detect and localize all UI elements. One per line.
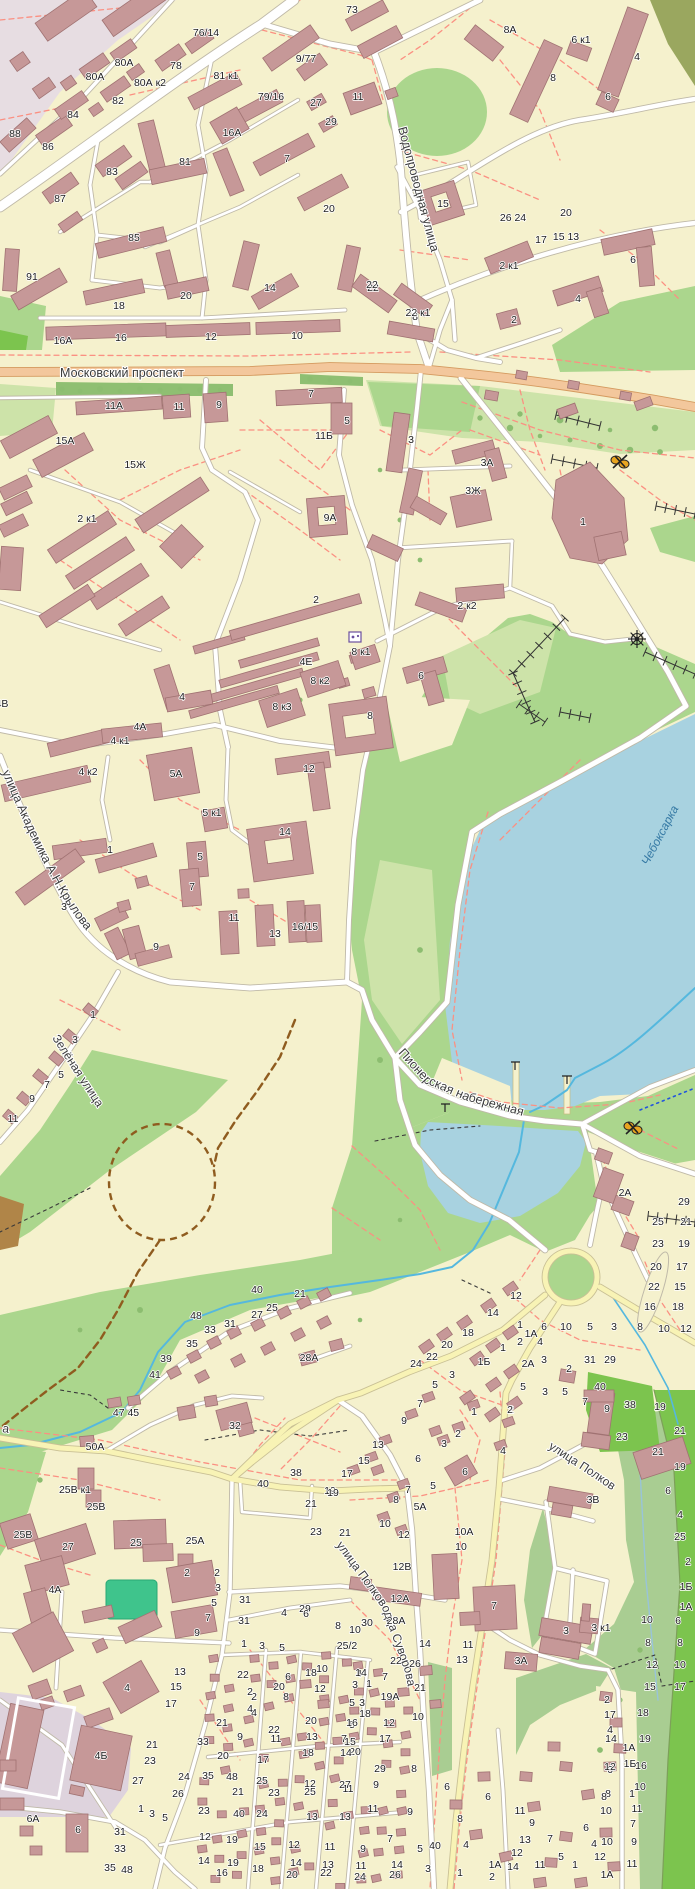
svg-text:2: 2 (685, 1556, 691, 1568)
svg-text:5: 5 (279, 1642, 285, 1654)
svg-text:11Б: 11Б (315, 430, 333, 442)
svg-text:13: 13 (456, 1654, 468, 1666)
svg-text:6: 6 (583, 1822, 589, 1834)
svg-text:10А: 10А (455, 1526, 474, 1538)
svg-text:31: 31 (239, 1594, 251, 1606)
svg-text:1: 1 (471, 1406, 477, 1418)
svg-text:9: 9 (604, 1403, 610, 1415)
svg-text:13: 13 (306, 1731, 318, 1743)
svg-text:2: 2 (566, 1363, 572, 1375)
svg-text:35: 35 (186, 1338, 198, 1350)
svg-text:33: 33 (114, 1843, 126, 1855)
svg-text:31: 31 (238, 1615, 250, 1627)
svg-text:5: 5 (58, 1069, 64, 1081)
svg-text:15: 15 (170, 1681, 182, 1693)
svg-text:18: 18 (637, 1707, 649, 1719)
svg-text:15: 15 (254, 1841, 266, 1853)
svg-text:4В: 4В (0, 698, 8, 710)
svg-text:8: 8 (677, 1637, 683, 1649)
svg-text:5: 5 (558, 1851, 564, 1863)
svg-text:25: 25 (266, 1302, 278, 1314)
svg-text:19: 19 (674, 1461, 686, 1473)
svg-text:5: 5 (162, 1812, 168, 1824)
svg-text:22: 22 (648, 1281, 660, 1293)
svg-text:26: 26 (409, 1658, 421, 1670)
svg-text:9А: 9А (324, 512, 337, 524)
svg-text:12: 12 (510, 1290, 522, 1302)
svg-text:7: 7 (189, 881, 195, 893)
svg-text:40: 40 (233, 1808, 245, 1820)
svg-text:16А: 16А (223, 127, 242, 139)
svg-text:10: 10 (455, 1541, 467, 1553)
svg-text:Московский проспект: Московский проспект (60, 366, 184, 380)
svg-text:11: 11 (463, 1639, 474, 1651)
svg-text:12: 12 (205, 331, 217, 343)
svg-text:6: 6 (285, 1671, 291, 1683)
svg-text:6: 6 (630, 254, 636, 266)
svg-text:3 к1: 3 к1 (591, 1622, 610, 1634)
svg-text:15А: 15А (56, 435, 75, 447)
svg-text:1Б: 1Б (478, 1356, 491, 1368)
svg-text:39: 39 (160, 1353, 172, 1365)
svg-text:1: 1 (500, 1342, 506, 1354)
svg-text:12В: 12В (393, 1561, 412, 1573)
svg-text:5: 5 (197, 851, 203, 863)
svg-text:1: 1 (366, 1678, 372, 1690)
svg-text:22: 22 (426, 1351, 438, 1363)
svg-text:1: 1 (580, 516, 586, 528)
svg-text:27: 27 (251, 1309, 263, 1321)
svg-text:24: 24 (256, 1808, 268, 1820)
svg-text:7: 7 (382, 1671, 388, 1683)
svg-text:1А: 1А (601, 1869, 614, 1881)
svg-text:21: 21 (216, 1717, 228, 1729)
svg-text:38: 38 (624, 1399, 636, 1411)
svg-text:14: 14 (355, 1667, 367, 1679)
svg-text:14: 14 (487, 1307, 499, 1319)
svg-text:9: 9 (401, 1415, 407, 1427)
svg-text:1: 1 (138, 1803, 144, 1815)
svg-text:8 к2: 8 к2 (310, 675, 329, 687)
svg-text:5: 5 (344, 415, 350, 427)
svg-text:10: 10 (560, 1321, 572, 1333)
svg-text:9: 9 (237, 1731, 243, 1743)
svg-text:6: 6 (303, 1608, 309, 1620)
svg-text:26: 26 (389, 1869, 401, 1881)
svg-text:7: 7 (630, 1818, 636, 1830)
svg-text:8: 8 (637, 1321, 643, 1333)
svg-text:3: 3 (541, 1354, 547, 1366)
svg-text:21: 21 (305, 1498, 317, 1510)
svg-text:6: 6 (675, 1615, 681, 1627)
svg-text:31: 31 (584, 1354, 596, 1366)
svg-text:1А: 1А (489, 1859, 502, 1871)
svg-text:25В: 25В (87, 1501, 106, 1513)
svg-text:5: 5 (211, 1597, 217, 1609)
svg-text:31: 31 (114, 1826, 126, 1838)
svg-text:22: 22 (390, 1655, 402, 1667)
svg-text:27: 27 (310, 97, 322, 109)
svg-text:8А: 8А (504, 24, 517, 36)
svg-text:1: 1 (107, 844, 113, 856)
svg-text:8: 8 (645, 1637, 651, 1649)
svg-text:40: 40 (257, 1478, 269, 1490)
svg-text:25/2: 25/2 (337, 1640, 358, 1652)
svg-text:31: 31 (224, 1318, 236, 1330)
svg-text:48: 48 (226, 1771, 238, 1783)
svg-text:3А: 3А (481, 457, 494, 469)
svg-text:15 13: 15 13 (553, 231, 579, 243)
svg-text:29: 29 (374, 1763, 386, 1775)
svg-text:4А: 4А (134, 721, 147, 733)
svg-text:13: 13 (372, 1439, 384, 1451)
svg-text:33: 33 (197, 1736, 209, 1748)
svg-text:3Ж: 3Ж (465, 485, 481, 497)
svg-text:16: 16 (635, 1760, 647, 1772)
svg-text:78: 78 (170, 60, 182, 72)
svg-text:8 к1: 8 к1 (351, 646, 370, 658)
svg-text:3: 3 (542, 1386, 548, 1398)
svg-text:9: 9 (153, 941, 159, 953)
svg-text:21: 21 (414, 1682, 426, 1694)
svg-text:1: 1 (241, 1638, 247, 1650)
svg-text:14: 14 (507, 1861, 519, 1873)
svg-text:6: 6 (415, 1453, 421, 1465)
svg-text:82: 82 (112, 95, 124, 107)
svg-text:1А: 1А (623, 1742, 636, 1754)
svg-text:20: 20 (305, 1715, 317, 1727)
svg-text:23: 23 (144, 1755, 156, 1767)
svg-text:19: 19 (226, 1834, 238, 1846)
svg-text:4: 4 (591, 1838, 597, 1850)
svg-text:5 к1: 5 к1 (202, 807, 221, 819)
svg-text:23: 23 (652, 1238, 664, 1250)
svg-text:10: 10 (601, 1836, 613, 1848)
svg-text:5А: 5А (414, 1501, 427, 1513)
svg-text:21: 21 (232, 1786, 244, 1798)
svg-text:10: 10 (674, 1659, 686, 1671)
svg-text:9: 9 (360, 1843, 366, 1855)
svg-text:11: 11 (174, 401, 185, 413)
svg-text:23: 23 (268, 1787, 280, 1799)
svg-text:18: 18 (252, 1863, 264, 1875)
svg-text:8: 8 (411, 1763, 417, 1775)
svg-text:12: 12 (511, 1847, 523, 1859)
svg-text:11: 11 (325, 1841, 336, 1853)
svg-text:85: 85 (128, 232, 140, 244)
svg-text:6: 6 (462, 1466, 468, 1478)
svg-text:25: 25 (130, 1537, 142, 1549)
svg-text:20: 20 (217, 1750, 229, 1762)
svg-text:9: 9 (373, 1779, 379, 1791)
svg-text:3: 3 (425, 1863, 431, 1875)
svg-text:12: 12 (604, 1761, 616, 1773)
svg-text:12: 12 (680, 1323, 692, 1335)
svg-text:26 24: 26 24 (500, 212, 526, 224)
svg-text:20: 20 (323, 203, 335, 215)
svg-text:23: 23 (198, 1805, 210, 1817)
svg-text:41: 41 (149, 1369, 161, 1381)
svg-text:88: 88 (9, 128, 21, 140)
svg-text:17: 17 (676, 1261, 688, 1273)
svg-text:11: 11 (368, 1803, 379, 1815)
svg-text:5: 5 (430, 1480, 436, 1492)
svg-text:1: 1 (90, 1009, 96, 1021)
svg-text:11: 11 (515, 1805, 526, 1817)
svg-text:12: 12 (314, 1683, 326, 1695)
svg-text:10: 10 (634, 1781, 646, 1793)
svg-text:24: 24 (354, 1871, 366, 1883)
svg-text:48: 48 (121, 1864, 133, 1876)
svg-text:7: 7 (205, 1612, 211, 1624)
svg-text:5А: 5А (170, 768, 183, 780)
svg-text:5: 5 (587, 1321, 593, 1333)
svg-text:14: 14 (198, 1855, 210, 1867)
svg-text:22: 22 (366, 279, 378, 291)
svg-text:11: 11 (229, 912, 240, 924)
svg-text:22: 22 (237, 1669, 249, 1681)
svg-text:8: 8 (393, 1494, 399, 1506)
svg-text:8: 8 (457, 1813, 463, 1825)
svg-text:10: 10 (349, 1624, 361, 1636)
svg-text:6: 6 (605, 91, 611, 103)
svg-text:18: 18 (359, 1708, 371, 1720)
svg-text:13: 13 (519, 1834, 531, 1846)
svg-text:7: 7 (582, 1396, 588, 1408)
svg-text:5: 5 (417, 1843, 423, 1855)
svg-text:2: 2 (214, 1567, 220, 1579)
svg-text:40: 40 (429, 1840, 441, 1852)
svg-text:12А: 12А (391, 1593, 410, 1605)
svg-text:6: 6 (665, 1485, 671, 1497)
svg-text:24: 24 (410, 1358, 422, 1370)
svg-text:13: 13 (339, 1811, 351, 1823)
svg-text:3: 3 (61, 901, 67, 913)
svg-text:14: 14 (279, 826, 291, 838)
svg-text:15: 15 (344, 1736, 356, 1748)
svg-text:48: 48 (190, 1310, 202, 1322)
svg-text:14: 14 (419, 1638, 431, 1650)
svg-text:2: 2 (489, 1871, 495, 1883)
svg-text:25: 25 (652, 1216, 664, 1228)
svg-text:3: 3 (352, 1679, 358, 1691)
svg-text:15: 15 (644, 1681, 656, 1693)
svg-text:20: 20 (441, 1339, 453, 1351)
svg-text:80А к2: 80А к2 (134, 77, 166, 89)
svg-text:21: 21 (652, 1446, 664, 1458)
svg-text:11: 11 (627, 1858, 638, 1870)
svg-text:10: 10 (658, 1323, 670, 1335)
svg-text:12: 12 (199, 1831, 211, 1843)
svg-text:25В к1: 25В к1 (59, 1484, 91, 1496)
svg-text:3: 3 (563, 1625, 569, 1637)
svg-text:1: 1 (517, 1319, 523, 1331)
svg-text:13: 13 (306, 1811, 318, 1823)
svg-text:2: 2 (184, 1567, 190, 1579)
svg-text:4: 4 (179, 691, 185, 703)
svg-text:4: 4 (537, 1336, 543, 1348)
svg-text:9: 9 (529, 1817, 535, 1829)
svg-text:20: 20 (560, 207, 572, 219)
svg-text:19: 19 (227, 1857, 239, 1869)
svg-text:1А: 1А (525, 1328, 538, 1340)
svg-text:2 к2: 2 к2 (457, 600, 476, 612)
svg-text:2: 2 (247, 1686, 253, 1698)
svg-text:23: 23 (616, 1431, 628, 1443)
svg-text:4: 4 (281, 1607, 287, 1619)
svg-text:6: 6 (75, 1824, 81, 1836)
svg-text:3: 3 (72, 1034, 78, 1046)
svg-text:17: 17 (379, 1733, 391, 1745)
svg-text:6: 6 (444, 1781, 450, 1793)
svg-text:2 к1: 2 к1 (499, 260, 518, 272)
svg-text:10: 10 (412, 1711, 424, 1723)
svg-text:11: 11 (535, 1859, 546, 1871)
svg-text:1А: 1А (680, 1601, 693, 1613)
svg-text:3В: 3В (587, 1494, 600, 1506)
svg-text:86: 86 (42, 141, 54, 153)
svg-text:9: 9 (631, 1836, 637, 1848)
svg-text:4Е: 4Е (300, 656, 313, 668)
svg-text:19: 19 (639, 1733, 651, 1745)
svg-text:21: 21 (294, 1288, 306, 1300)
svg-text:22 к1: 22 к1 (405, 307, 430, 319)
svg-text:22: 22 (320, 1867, 332, 1879)
svg-text:4: 4 (634, 51, 640, 63)
svg-text:1: 1 (457, 1867, 463, 1879)
svg-text:14: 14 (264, 282, 276, 294)
svg-text:1: 1 (572, 1859, 578, 1871)
svg-text:13: 13 (269, 928, 281, 940)
svg-text:4: 4 (677, 1509, 683, 1521)
svg-text:27: 27 (339, 1779, 351, 1791)
svg-text:3: 3 (449, 1369, 455, 1381)
svg-text:11: 11 (8, 1113, 19, 1125)
svg-text:2А: 2А (619, 1187, 632, 1199)
svg-text:35: 35 (202, 1770, 214, 1782)
svg-text:21: 21 (680, 1216, 692, 1228)
svg-text:11А: 11А (105, 400, 123, 412)
svg-text:12: 12 (383, 1717, 395, 1729)
svg-text:25: 25 (674, 1531, 686, 1543)
svg-text:32: 32 (229, 1420, 241, 1432)
svg-text:5: 5 (349, 1697, 355, 1709)
svg-text:25: 25 (256, 1775, 268, 1787)
svg-text:20: 20 (650, 1261, 662, 1273)
svg-text:8: 8 (335, 1620, 341, 1632)
svg-text:83: 83 (106, 166, 118, 178)
svg-text:16: 16 (644, 1301, 656, 1313)
svg-text:15Ж: 15Ж (124, 459, 146, 471)
svg-text:15: 15 (358, 1455, 370, 1467)
svg-text:2А: 2А (522, 1358, 535, 1370)
svg-text:29: 29 (678, 1196, 690, 1208)
svg-text:9: 9 (407, 1806, 413, 1818)
svg-text:16/15: 16/15 (292, 921, 318, 933)
svg-text:5: 5 (562, 1386, 568, 1398)
svg-text:10: 10 (316, 1663, 328, 1675)
svg-text:6 к1: 6 к1 (571, 34, 590, 46)
svg-text:16: 16 (216, 1867, 228, 1879)
svg-text:25А: 25А (186, 1535, 205, 1547)
svg-text:76/14: 76/14 (193, 27, 219, 39)
svg-text:17: 17 (674, 1681, 686, 1693)
svg-text:2: 2 (517, 1336, 523, 1348)
svg-text:27: 27 (62, 1541, 74, 1553)
svg-text:7: 7 (405, 1484, 411, 1496)
svg-text:28А: 28А (300, 1352, 319, 1364)
svg-text:16: 16 (346, 1717, 358, 1729)
svg-text:35: 35 (104, 1862, 116, 1874)
svg-text:7: 7 (491, 1600, 497, 1612)
svg-text:18: 18 (302, 1747, 314, 1759)
svg-text:3: 3 (441, 1438, 447, 1450)
svg-text:19: 19 (678, 1238, 690, 1250)
svg-text:33: 33 (204, 1324, 216, 1336)
svg-text:7: 7 (387, 1833, 393, 1845)
svg-text:8: 8 (550, 72, 556, 84)
svg-text:12: 12 (646, 1659, 658, 1671)
svg-text:8: 8 (601, 1791, 607, 1803)
svg-text:3: 3 (149, 1808, 155, 1820)
svg-text:19: 19 (654, 1401, 666, 1413)
svg-text:18: 18 (462, 1327, 474, 1339)
svg-text:81: 81 (179, 156, 191, 168)
svg-text:30: 30 (361, 1617, 373, 1629)
svg-text:4: 4 (463, 1839, 469, 1851)
svg-text:17: 17 (604, 1709, 616, 1721)
svg-text:6А: 6А (27, 1813, 40, 1825)
svg-text:11: 11 (632, 1803, 643, 1815)
svg-text:1Б: 1Б (680, 1581, 693, 1593)
svg-text:12: 12 (594, 1851, 606, 1863)
svg-text:40: 40 (251, 1284, 263, 1296)
svg-text:4 к2: 4 к2 (78, 766, 97, 778)
svg-text:2: 2 (511, 314, 517, 326)
svg-text:50А: 50А (86, 1441, 105, 1453)
svg-text:28А: 28А (387, 1615, 406, 1627)
svg-text:7: 7 (547, 1833, 553, 1845)
svg-text:40: 40 (594, 1381, 606, 1393)
svg-text:20: 20 (180, 290, 192, 302)
svg-text:47 45: 47 45 (113, 1407, 139, 1419)
svg-text:2: 2 (455, 1428, 461, 1440)
svg-text:29: 29 (604, 1354, 616, 1366)
svg-text:3: 3 (408, 434, 414, 446)
svg-text:3: 3 (215, 1582, 221, 1594)
svg-text:14: 14 (340, 1747, 352, 1759)
svg-text:21: 21 (339, 1527, 351, 1539)
svg-text:10: 10 (600, 1805, 612, 1817)
svg-text:12: 12 (303, 763, 315, 775)
svg-text:9: 9 (194, 1627, 200, 1639)
svg-text:19: 19 (327, 1487, 339, 1499)
svg-text:24: 24 (178, 1771, 190, 1783)
svg-text:17: 17 (165, 1698, 177, 1710)
svg-text:9/77: 9/77 (296, 53, 317, 65)
svg-text:4: 4 (575, 293, 581, 305)
svg-text:23: 23 (310, 1526, 322, 1538)
svg-text:80А: 80А (86, 71, 105, 83)
svg-text:17: 17 (535, 234, 547, 246)
svg-text:26: 26 (172, 1788, 184, 1800)
svg-text:3: 3 (259, 1640, 265, 1652)
svg-text:27: 27 (132, 1775, 144, 1787)
svg-text:3А: 3А (515, 1655, 528, 1667)
svg-text:87: 87 (54, 193, 66, 205)
svg-text:4Б: 4Б (95, 1750, 108, 1762)
svg-text:7: 7 (417, 1398, 423, 1410)
